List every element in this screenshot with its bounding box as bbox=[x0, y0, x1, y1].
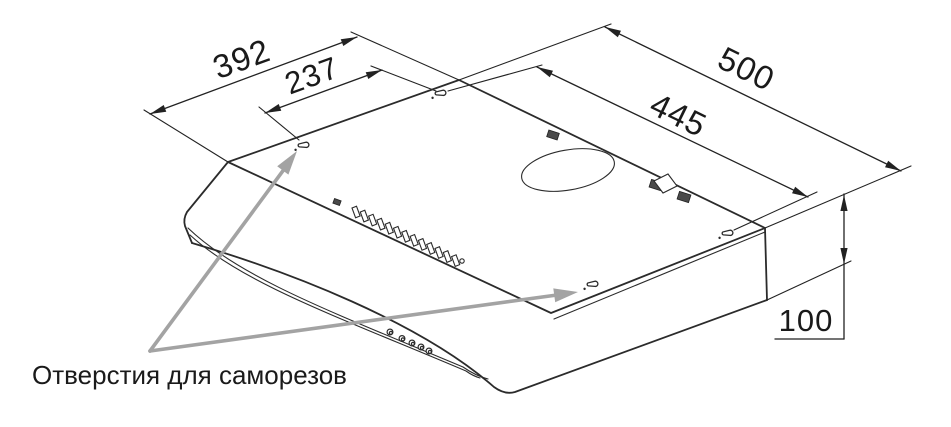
front-strip-top-edge bbox=[188, 228, 488, 379]
keyhole-screw-hole bbox=[431, 90, 447, 99]
callout-arrow-shaft-right bbox=[150, 295, 557, 351]
small-vent-hole bbox=[460, 259, 464, 263]
louver-slat bbox=[443, 251, 451, 263]
extension-line bbox=[371, 66, 436, 91]
louver-slat bbox=[402, 231, 410, 243]
bracket-pad bbox=[677, 191, 691, 202]
extension-line bbox=[259, 107, 299, 140]
arrowhead bbox=[605, 27, 621, 37]
arrowhead bbox=[840, 195, 847, 211]
arrowhead bbox=[366, 70, 382, 79]
arrowhead bbox=[792, 187, 808, 197]
control-button bbox=[409, 340, 415, 346]
louvers bbox=[352, 206, 460, 266]
dimension-label-237: 237 bbox=[280, 50, 343, 102]
arrowhead bbox=[265, 104, 281, 113]
louver-slat bbox=[377, 218, 385, 230]
louver-slat bbox=[452, 255, 460, 267]
bracket-pad bbox=[547, 130, 560, 140]
extension-line bbox=[448, 65, 542, 91]
control-button bbox=[399, 336, 405, 342]
mounting-brackets bbox=[547, 130, 691, 203]
small-vent-square bbox=[333, 198, 341, 205]
diagram-canvas: 392 237 500 445 bbox=[0, 0, 951, 427]
louver-slat bbox=[394, 226, 402, 238]
hood-mounting-diagram: 392 237 500 445 bbox=[0, 0, 951, 427]
right-back-vertical-edge bbox=[765, 228, 767, 300]
keyhole-screw-hole bbox=[294, 142, 310, 151]
callout-arrowhead-left bbox=[277, 151, 297, 175]
arrowhead bbox=[840, 248, 847, 264]
louver-slat bbox=[410, 235, 418, 247]
dimension-line bbox=[605, 27, 901, 171]
dimension-100: 100 bbox=[767, 194, 851, 339]
louver-slat bbox=[360, 210, 368, 222]
extension-line bbox=[767, 261, 851, 300]
control-button bbox=[426, 348, 432, 354]
louver-slat bbox=[435, 247, 443, 259]
dimension-label-445: 445 bbox=[644, 85, 712, 144]
callout-arrow-shaft-left bbox=[150, 168, 285, 351]
arrowhead bbox=[537, 67, 553, 77]
control-button bbox=[387, 329, 393, 335]
louver-slat bbox=[352, 206, 360, 218]
extension-line bbox=[765, 166, 911, 228]
arrowhead bbox=[150, 105, 166, 114]
extension-line bbox=[459, 24, 611, 80]
control-button bbox=[418, 344, 424, 350]
louver-slat bbox=[369, 214, 377, 226]
louver-slat bbox=[418, 239, 426, 251]
screw-holes-annotation: Отверстия для саморезов bbox=[32, 360, 347, 390]
arrowhead bbox=[885, 161, 901, 171]
dimension-label-100: 100 bbox=[779, 303, 834, 338]
dimension-label-500: 500 bbox=[712, 39, 780, 98]
callout: Отверстия для саморезов bbox=[32, 151, 578, 390]
louver-slat bbox=[427, 243, 435, 255]
extension-line bbox=[144, 110, 228, 162]
arrowhead bbox=[341, 37, 357, 46]
right-end-band bbox=[554, 232, 765, 319]
dimension-label-392: 392 bbox=[208, 31, 275, 86]
keyhole-screw-hole bbox=[583, 281, 599, 290]
louver-slat bbox=[385, 222, 393, 234]
keyhole-screw-hole bbox=[718, 230, 734, 239]
callout-arrowhead-right bbox=[553, 288, 578, 302]
